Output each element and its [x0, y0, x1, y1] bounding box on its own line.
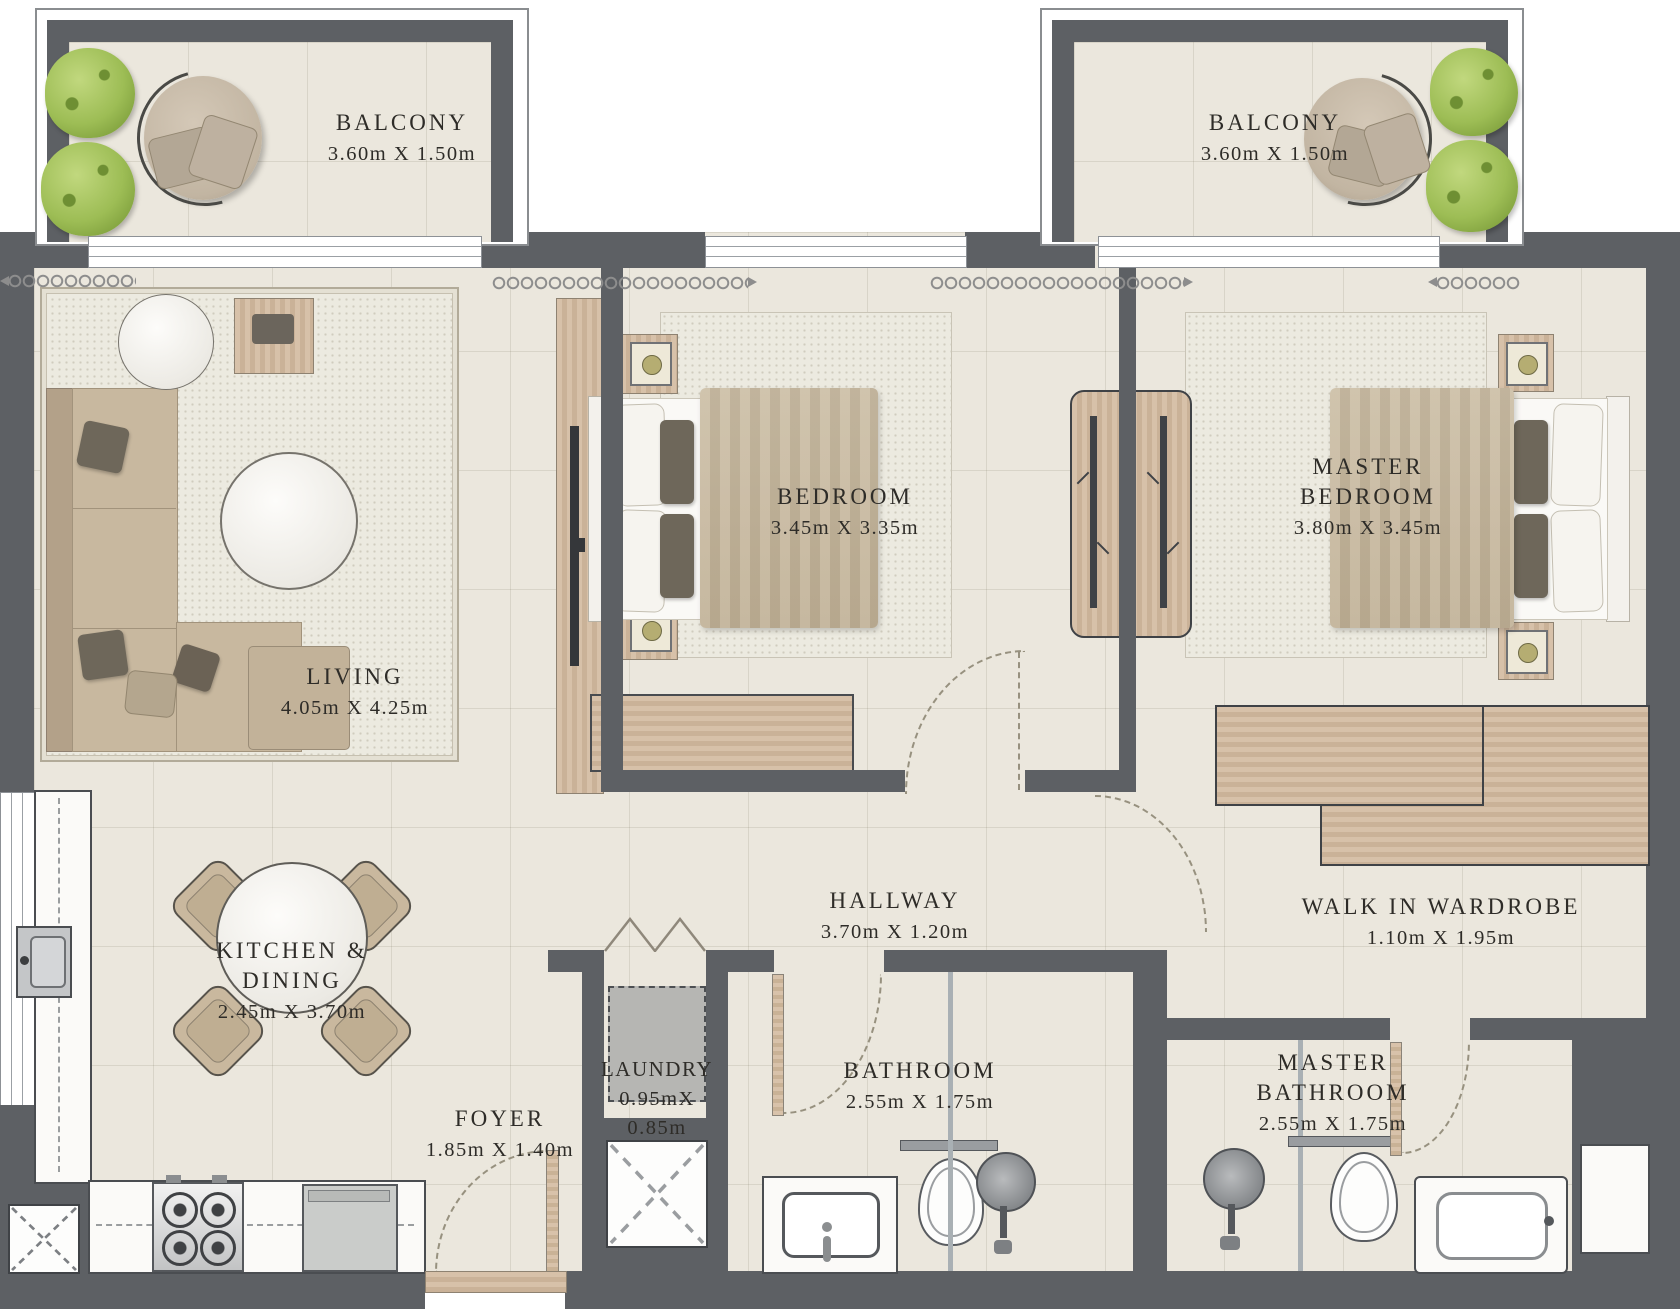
room-name: KITCHEN & DINING	[167, 936, 417, 996]
label-balcony-right: BALCONY 3.60m X 1.50m	[1155, 108, 1395, 169]
sofa-pillow	[77, 629, 129, 681]
lamp-icon	[1506, 342, 1548, 386]
sofa-back	[46, 388, 74, 752]
room-name: LIVING	[235, 662, 475, 692]
room-dims: 3.60m X 1.50m	[282, 140, 522, 169]
label-bathroom: BATHROOM 2.55m X 1.75m	[800, 1056, 1040, 1117]
shower-arm	[1228, 1204, 1235, 1234]
tv-mount	[579, 538, 585, 552]
coffee-table	[220, 452, 358, 590]
window	[1098, 236, 1440, 268]
label-master-bathroom: MASTER BATHROOM 2.55m X 1.75m	[1213, 1048, 1453, 1138]
room-dims: 3.80m X 3.45m	[1248, 514, 1488, 543]
bed-pillow	[1514, 420, 1548, 504]
lamp-bulb	[1518, 355, 1538, 375]
sofa-pillow	[76, 420, 131, 475]
curtain-icon	[930, 274, 1184, 292]
curtain-arrow-icon	[0, 276, 9, 286]
sofa-pillow	[124, 670, 178, 719]
tub-basin	[1436, 1192, 1548, 1260]
bed-headboard	[1606, 396, 1630, 622]
faucet-icon	[20, 956, 29, 965]
burner-icon	[162, 1192, 198, 1228]
bed-pillow	[1550, 403, 1604, 507]
bed-pillow	[660, 420, 694, 504]
room-dims: 2.55m X 1.75m	[1213, 1110, 1453, 1139]
kitchen-sink	[16, 926, 72, 998]
shower-head	[1203, 1148, 1265, 1210]
faucet-icon	[1544, 1216, 1554, 1226]
plant-icon	[1430, 48, 1518, 136]
sink-basin	[30, 936, 66, 988]
wall-bath-masterbath	[1133, 950, 1167, 1271]
wardrobe-rail	[1160, 416, 1167, 608]
wall-bottom	[0, 1271, 425, 1309]
curtain-arrow-icon	[1428, 277, 1437, 287]
stove-knob	[212, 1175, 227, 1183]
shower-knob	[1220, 1236, 1240, 1250]
label-hallway: HALLWAY 3.70m X 1.20m	[775, 886, 1015, 947]
shower-arm	[1000, 1206, 1007, 1238]
floor-plan: BALCONY 3.60m X 1.50m BALCONY 3.60m X 1.…	[0, 0, 1680, 1309]
room-name: MASTER BEDROOM	[1248, 452, 1488, 512]
plant-icon	[1426, 140, 1518, 232]
appliance-handle	[308, 1190, 390, 1202]
room-dims: 0.95mX 0.85m	[597, 1085, 717, 1142]
stove	[152, 1182, 244, 1272]
label-laundry: LAUNDRY 0.95mX 0.85m	[597, 1056, 717, 1143]
curtain-icon	[8, 272, 136, 290]
shower-glass	[948, 972, 953, 1271]
wall-bedroom-south	[1025, 770, 1119, 792]
label-foyer: FOYER 1.85m X 1.40m	[400, 1104, 600, 1165]
curtain-arrow-icon	[1184, 277, 1193, 287]
shower-knob	[994, 1240, 1012, 1254]
lamp-icon	[630, 342, 672, 386]
laundry-bifold-door	[604, 916, 706, 952]
wall-masterbath-north	[1470, 1018, 1646, 1040]
room-name: BALCONY	[282, 108, 522, 138]
curtain-icon	[492, 274, 748, 292]
entry-threshold	[425, 1271, 567, 1293]
faucet-icon	[823, 1236, 831, 1262]
room-name: MASTER BATHROOM	[1213, 1048, 1453, 1108]
shower-head	[976, 1152, 1036, 1212]
sofa-cushion-line	[72, 628, 176, 629]
door-leaf	[772, 974, 784, 1116]
label-bedroom: BEDROOM 3.45m X 3.35m	[725, 482, 965, 543]
lamp-icon	[1506, 630, 1548, 674]
room-name: BALCONY	[1155, 108, 1395, 138]
wall-right	[1646, 268, 1680, 1271]
tv-icon	[570, 426, 579, 666]
wall-bottom	[565, 1271, 1680, 1309]
burner-icon	[162, 1230, 198, 1266]
curtain-icon	[1436, 274, 1520, 292]
niche	[1580, 1144, 1650, 1254]
window	[88, 236, 482, 268]
wall-bedroom-south	[601, 770, 905, 792]
room-name: HALLWAY	[775, 886, 1015, 916]
room-dims: 3.70m X 1.20m	[775, 918, 1015, 947]
tray-icon	[252, 314, 294, 344]
bed-pillow	[660, 514, 694, 598]
bed-pillow	[1514, 514, 1548, 598]
plant-icon	[45, 48, 135, 138]
room-name: FOYER	[400, 1104, 600, 1134]
label-walk-in-wardrobe: WALK IN WARDROBE 1.10m X 1.95m	[1256, 892, 1626, 953]
burner-icon	[200, 1192, 236, 1228]
bathroom-sink-counter	[762, 1176, 898, 1274]
plant-icon	[41, 142, 135, 236]
bathtub	[1414, 1176, 1568, 1274]
wardrobe-rail	[1090, 416, 1097, 608]
wall-bathroom-north	[884, 950, 1133, 972]
room-dims: 3.60m X 1.50m	[1155, 140, 1395, 169]
wall-masterbath-north	[1167, 1018, 1390, 1040]
window	[705, 236, 967, 268]
bench	[590, 694, 854, 772]
wardrobe-counter	[1215, 705, 1484, 806]
stove-knob	[166, 1175, 181, 1183]
lamp-bulb	[1518, 643, 1538, 663]
room-name: WALK IN WARDROBE	[1256, 892, 1626, 922]
dishwasher	[302, 1184, 398, 1272]
bed-pillow	[1550, 509, 1604, 613]
wall-living-bedroom	[601, 268, 623, 792]
label-kitchen-dining: KITCHEN & DINING 2.45m X 3.70m	[167, 936, 417, 1026]
cabinet	[8, 1204, 80, 1274]
wall-bathroom-north	[728, 950, 774, 972]
wall-bedroom-master	[1119, 268, 1136, 792]
wall-left	[0, 268, 34, 792]
room-name: BATHROOM	[800, 1056, 1040, 1086]
side-table-round	[118, 294, 214, 390]
room-dims: 2.45m X 3.70m	[167, 998, 417, 1027]
faucet-icon	[822, 1222, 832, 1232]
room-dims: 1.10m X 1.95m	[1256, 924, 1626, 953]
cabinet	[606, 1140, 708, 1248]
room-dims: 4.05m X 4.25m	[235, 694, 475, 723]
sofa-cushion-line	[72, 508, 176, 509]
room-dims: 1.85m X 1.40m	[400, 1136, 600, 1165]
toilet-seat	[1339, 1161, 1389, 1233]
label-living: LIVING 4.05m X 4.25m	[235, 662, 475, 723]
label-master-bedroom: MASTER BEDROOM 3.80m X 3.45m	[1248, 452, 1488, 542]
room-dims: 3.45m X 3.35m	[725, 514, 965, 543]
lamp-bulb	[642, 621, 662, 641]
curtain-arrow-icon	[748, 277, 757, 287]
label-balcony-left: BALCONY 3.60m X 1.50m	[282, 108, 522, 169]
room-name: LAUNDRY	[597, 1056, 717, 1083]
burner-icon	[200, 1230, 236, 1266]
room-dims: 2.55m X 1.75m	[800, 1088, 1040, 1117]
room-name: BEDROOM	[725, 482, 965, 512]
lamp-bulb	[642, 355, 662, 375]
